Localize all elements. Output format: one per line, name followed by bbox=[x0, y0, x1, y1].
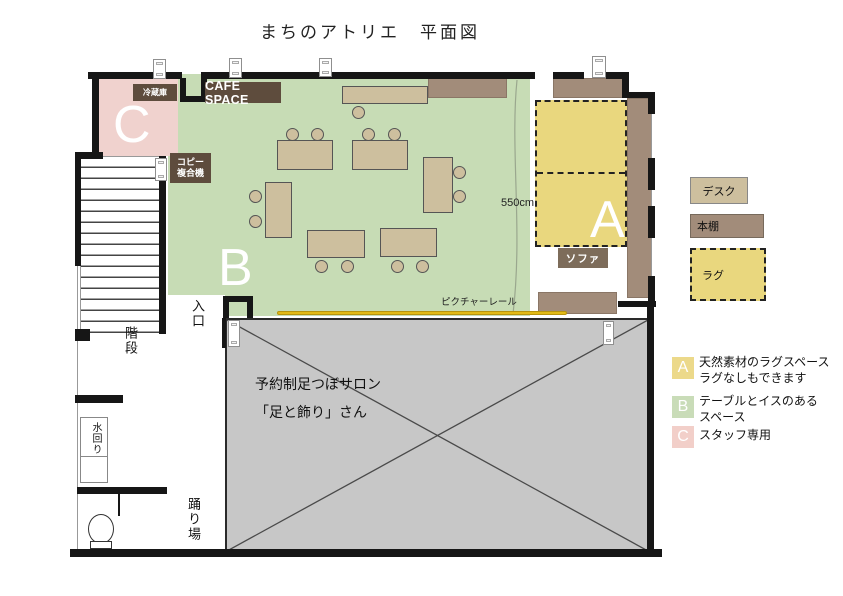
floor-plan: まちのアトリエ 平面図 予約制足つぼサロン 「足と飾り」さん bbox=[0, 0, 843, 596]
legend-bookshelf-label: 本棚 bbox=[697, 218, 719, 234]
chair-icon bbox=[286, 128, 299, 141]
table bbox=[265, 182, 292, 238]
vent-icon bbox=[155, 158, 167, 181]
wall bbox=[77, 487, 167, 494]
chair-icon bbox=[388, 128, 401, 141]
key-a-square: A bbox=[672, 357, 694, 379]
chair-icon bbox=[362, 128, 375, 141]
table bbox=[380, 228, 437, 257]
vent-icon bbox=[229, 58, 242, 78]
key-b-line1: テーブルとイスのある bbox=[699, 394, 818, 410]
key-c-square: C bbox=[672, 426, 694, 448]
salon-name-line1: 予約制足つぼサロン bbox=[255, 370, 381, 398]
salon-name-line2: 「足と飾り」さん bbox=[255, 398, 381, 426]
copier-label: コピー 複合機 bbox=[170, 153, 211, 183]
bookshelf-top-right bbox=[553, 78, 623, 98]
chair-icon bbox=[341, 260, 354, 273]
key-c-line1: スタッフ専用 bbox=[699, 428, 771, 444]
vent-icon bbox=[592, 56, 606, 78]
water-area-label: 水回り bbox=[88, 422, 103, 455]
door-icon bbox=[228, 320, 240, 347]
picture-rail-line bbox=[277, 311, 567, 315]
wall bbox=[222, 318, 226, 348]
door-partition-line bbox=[118, 494, 120, 516]
zone-b-letter: B bbox=[218, 242, 253, 294]
wall bbox=[647, 305, 654, 555]
copier-label-line2: 複合機 bbox=[177, 168, 204, 179]
key-b-letter: B bbox=[678, 398, 689, 416]
wall bbox=[92, 72, 99, 158]
vent-icon bbox=[319, 58, 332, 77]
wall bbox=[88, 72, 182, 79]
chair-icon bbox=[453, 190, 466, 203]
key-b-line2: スペース bbox=[699, 410, 818, 426]
wall bbox=[75, 395, 123, 403]
key-a-line1: 天然素材のラグスペース bbox=[699, 355, 830, 371]
key-a-letter: A bbox=[678, 359, 689, 377]
wall bbox=[75, 158, 81, 266]
chair-icon bbox=[453, 166, 466, 179]
door-icon bbox=[603, 321, 614, 345]
sofa-label-text: ソファ bbox=[566, 251, 601, 266]
cafe-space-label: CAFE SPACE bbox=[205, 82, 281, 103]
legend-rug: ラグ bbox=[690, 248, 766, 301]
bookshelf-right-wall bbox=[627, 98, 652, 298]
stairs-label: 階段 bbox=[121, 326, 140, 356]
window-wall-segment bbox=[648, 158, 655, 190]
window-wall-segment bbox=[648, 206, 655, 238]
key-c-text: スタッフ専用 bbox=[699, 428, 771, 444]
wall bbox=[75, 329, 90, 341]
chair-icon bbox=[311, 128, 324, 141]
rug-divider-line bbox=[537, 172, 625, 174]
copier-label-line1: コピー bbox=[177, 157, 204, 168]
key-c-letter: C bbox=[677, 428, 689, 446]
sofa-label: ソファ bbox=[558, 248, 608, 268]
stairs bbox=[80, 156, 161, 335]
salon-area: 予約制足つぼサロン 「足と飾り」さん bbox=[225, 318, 650, 553]
table bbox=[307, 230, 365, 258]
legend-bookshelf: 本棚 bbox=[690, 214, 764, 238]
legend-desk-label: デスク bbox=[703, 183, 736, 199]
table bbox=[277, 140, 333, 170]
wall bbox=[553, 72, 584, 79]
window-wall-segment bbox=[648, 96, 655, 114]
wall bbox=[70, 549, 662, 557]
zone-a-letter: A bbox=[590, 194, 625, 246]
chair-icon bbox=[352, 106, 365, 119]
cafe-space-label-text: CAFE SPACE bbox=[205, 79, 281, 107]
entrance-label: 入口 bbox=[188, 299, 207, 329]
water-area-box: 水回り bbox=[80, 417, 108, 483]
chair-icon bbox=[416, 260, 429, 273]
table bbox=[423, 157, 453, 213]
wall-line bbox=[77, 266, 78, 551]
key-a-text: 天然素材のラグスペース ラグなしもできます bbox=[699, 355, 830, 386]
wall bbox=[159, 156, 166, 334]
key-b-square: B bbox=[672, 396, 694, 418]
key-a-line2: ラグなしもできます bbox=[699, 371, 830, 387]
legend-desk: デスク bbox=[690, 177, 748, 204]
landing-label: 踊り場 bbox=[184, 497, 203, 542]
chair-icon bbox=[249, 190, 262, 203]
key-b-text: テーブルとイスのある スペース bbox=[699, 394, 818, 425]
counter-desk bbox=[342, 86, 428, 104]
chair-icon bbox=[249, 215, 262, 228]
cross-out-lines bbox=[227, 320, 648, 551]
dimension-label: 550cm bbox=[501, 197, 534, 209]
toilet-icon bbox=[88, 514, 114, 544]
chair-icon bbox=[315, 260, 328, 273]
toilet-tank-icon bbox=[90, 541, 112, 549]
vent-icon bbox=[153, 59, 166, 79]
bookshelf-top-left bbox=[428, 78, 507, 98]
wall bbox=[223, 296, 229, 318]
chair-icon bbox=[391, 260, 404, 273]
wall bbox=[247, 302, 253, 318]
zone-c-letter: C bbox=[113, 99, 151, 151]
legend-rug-label: ラグ bbox=[702, 267, 724, 283]
window-glass-line bbox=[651, 96, 652, 306]
table bbox=[352, 140, 408, 170]
picture-rail-label: ピクチャーレール bbox=[441, 294, 517, 308]
